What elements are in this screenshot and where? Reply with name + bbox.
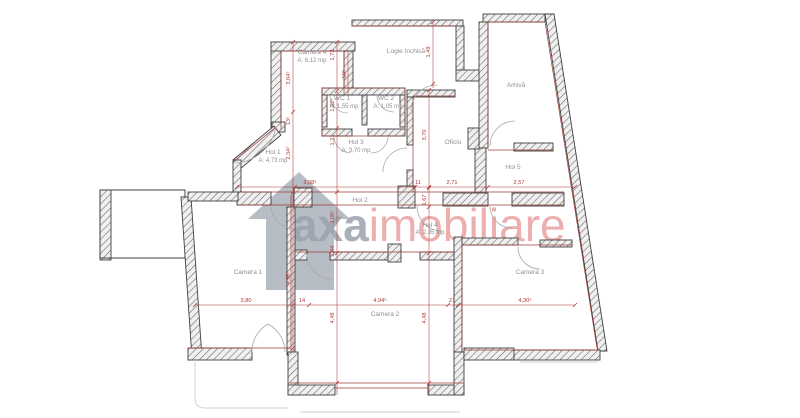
dim-v-304: 3,04⁵ [285,71,292,84]
dim-v-244: 2,44 [330,246,336,257]
room-area-hol1: A: 4,73 mp [258,158,288,164]
dim-v-448a: 4,48 [330,313,336,324]
dim-v-149: 1,49 [426,47,432,58]
room-area-camera-4: A: 6,12 mp [297,58,327,64]
room-label-hol5: Hol 5 [505,164,521,171]
dim-v-496: 4,96⁵ [285,271,292,284]
room-label-camera-4: Camera 4 [298,49,327,56]
room-label-camera-3: Camera 3 [516,269,545,276]
dim-v-306: 3,06⁵ [329,210,336,223]
room-label-arhiva: Arhivă [507,82,526,89]
dim-v-370: 3,70 [422,130,428,141]
room-label-oficiu: Oficiu [445,139,462,146]
floorplan-svg: axaimobiliare [0,0,800,418]
dim-h-14: 14 [299,298,305,304]
dim-h-430: 4,30⁵ [518,297,531,304]
dim-v-448b: 4,48 [422,313,428,324]
room-label-wc1: WC 1 [334,95,351,102]
room-area-hol3: A: 3,70 mp [341,148,371,154]
room-label-wc2: WC 2 [378,95,395,102]
dim-h-257: 2,57 [514,180,525,186]
dim-h-308: 3,08⁵ [303,179,316,186]
dim-h-494: 4,94⁵ [373,297,386,304]
room-area-hol4: A: 2,35 mp [415,230,445,236]
dim-h-271: 2,71 [447,180,458,186]
room-label-camera-2: Camera 2 [371,311,400,318]
room-label-logie: Logie închisă [387,48,426,55]
red-outline-group [188,22,598,388]
floorplan-screenshot: axaimobiliare [0,0,800,418]
dim-v-167: 1,67 [422,195,428,206]
room-label-hol2: Hol 2 [352,197,368,204]
dim-h-21: 21 [449,298,455,304]
room-label-hol1: Hol 1 [265,149,281,156]
dim-v-50: 50⁵ [341,70,348,79]
room-area-wc2: A: 1,05 mp [373,104,403,110]
dim-v-13: 13⁵ [285,117,292,126]
dim-v-121: 1,21 [330,135,336,146]
room-label-hol4: Hol 4 [422,222,438,229]
room-label-camera-1: Camera 1 [234,269,263,276]
dim-h-11: 11 [415,180,421,186]
terrace-lines-group [195,360,598,412]
dim-h-380: 3,80 [241,298,252,304]
room-area-wc1: A: 1,55 mp [329,104,359,110]
dim-v-172: 1,72 [330,50,336,61]
room-label-hol3: Hol 3 [348,139,364,146]
